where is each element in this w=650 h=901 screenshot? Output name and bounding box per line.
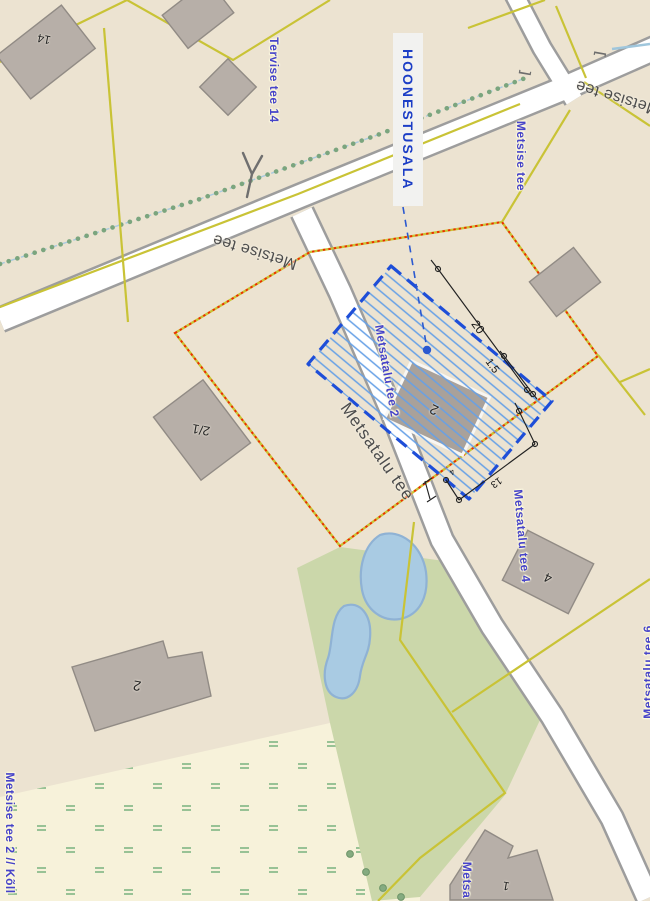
- map-canvas[interactable]: HOONESTUSALA Tervise tee 14 Metsise tee …: [0, 0, 650, 901]
- building-area-callout: HOONESTUSALA: [393, 33, 423, 206]
- map-graphics: [0, 0, 650, 901]
- building-area-callout-text: HOONESTUSALA: [400, 49, 416, 190]
